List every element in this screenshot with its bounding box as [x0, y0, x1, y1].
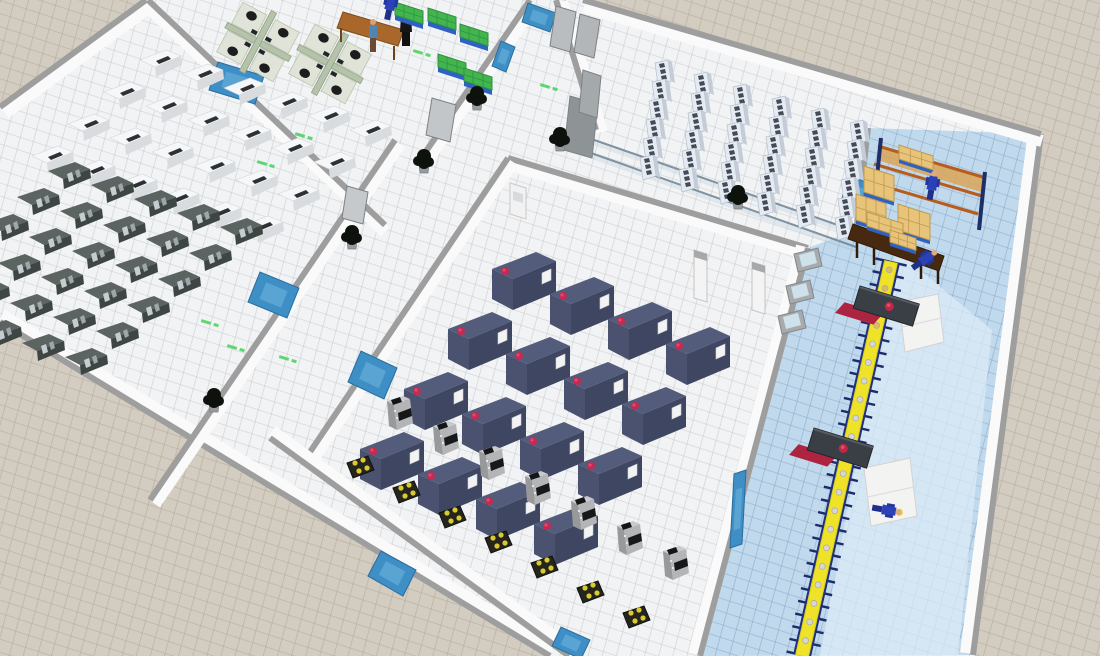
conveyor-item[interactable] — [836, 489, 842, 495]
conveyor-item[interactable] — [869, 341, 875, 347]
kiosk-stand[interactable] — [510, 183, 526, 219]
server-cabinet[interactable] — [796, 203, 816, 228]
conveyor-item[interactable] — [840, 471, 846, 477]
conveyor-item[interactable] — [857, 397, 863, 403]
conveyor-item[interactable] — [865, 359, 871, 365]
conveyor-item[interactable] — [874, 322, 880, 328]
scene-canvas[interactable] — [0, 0, 1100, 656]
conveyor-item[interactable] — [882, 285, 888, 291]
conveyor-item[interactable] — [819, 563, 825, 569]
conveyor-item[interactable] — [861, 378, 867, 384]
conveyor-item[interactable] — [811, 600, 817, 606]
turnstile[interactable] — [579, 70, 601, 118]
conveyor-item[interactable] — [815, 582, 821, 588]
conveyor-item[interactable] — [832, 508, 838, 514]
server-cabinet[interactable] — [757, 191, 777, 216]
factory-3d-viewport[interactable] — [0, 0, 1100, 656]
conveyor-item[interactable] — [803, 637, 809, 643]
conveyor-item[interactable] — [886, 267, 892, 273]
conveyor-item[interactable] — [853, 415, 859, 421]
corridor-door[interactable] — [342, 186, 368, 224]
conveyor-item[interactable] — [828, 526, 834, 532]
portal-post — [694, 250, 707, 302]
server-cabinet[interactable] — [679, 167, 699, 192]
conveyor-item[interactable] — [807, 619, 813, 625]
conveyor-item[interactable] — [823, 545, 829, 551]
office-door[interactable] — [426, 98, 456, 142]
portal-post — [752, 262, 765, 314]
server-cabinet[interactable] — [640, 155, 660, 180]
